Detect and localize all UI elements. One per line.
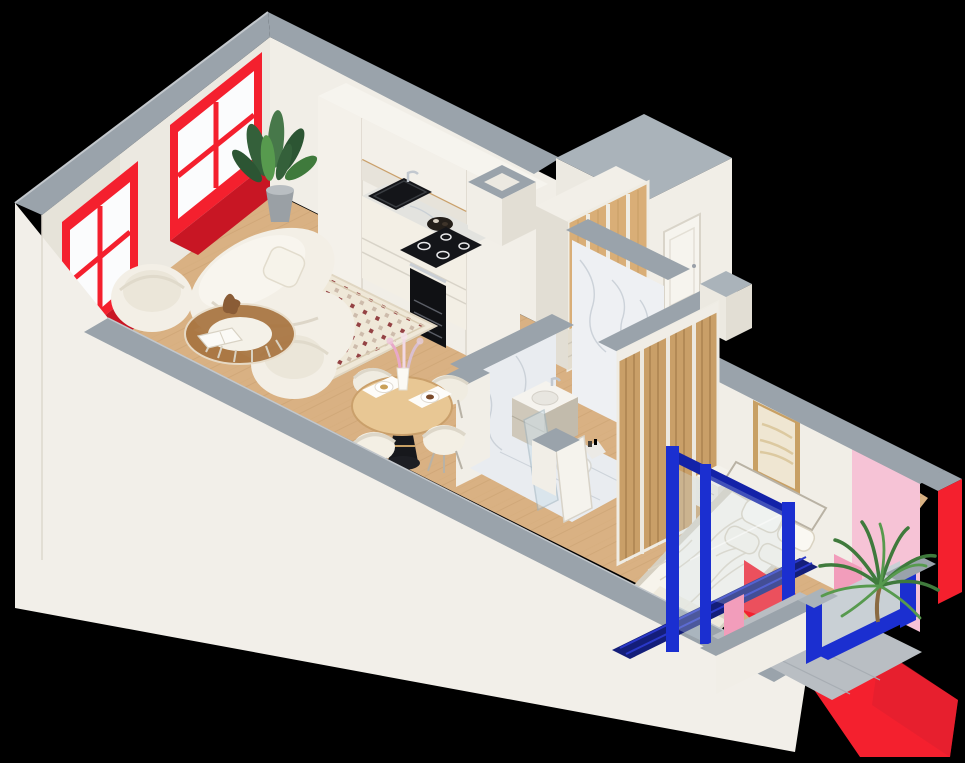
wall-pillar-kitchen-end	[468, 165, 536, 246]
isometric-floor-plan	[0, 0, 965, 763]
floor-plan-canvas	[0, 0, 965, 763]
sliding-door-glass-left	[679, 470, 700, 640]
door-knob	[692, 264, 696, 268]
sliding-door-post-2	[700, 464, 711, 644]
east-corner-red-face	[938, 479, 962, 604]
sliding-door-post-1	[666, 446, 679, 652]
armchair-left	[111, 264, 193, 332]
